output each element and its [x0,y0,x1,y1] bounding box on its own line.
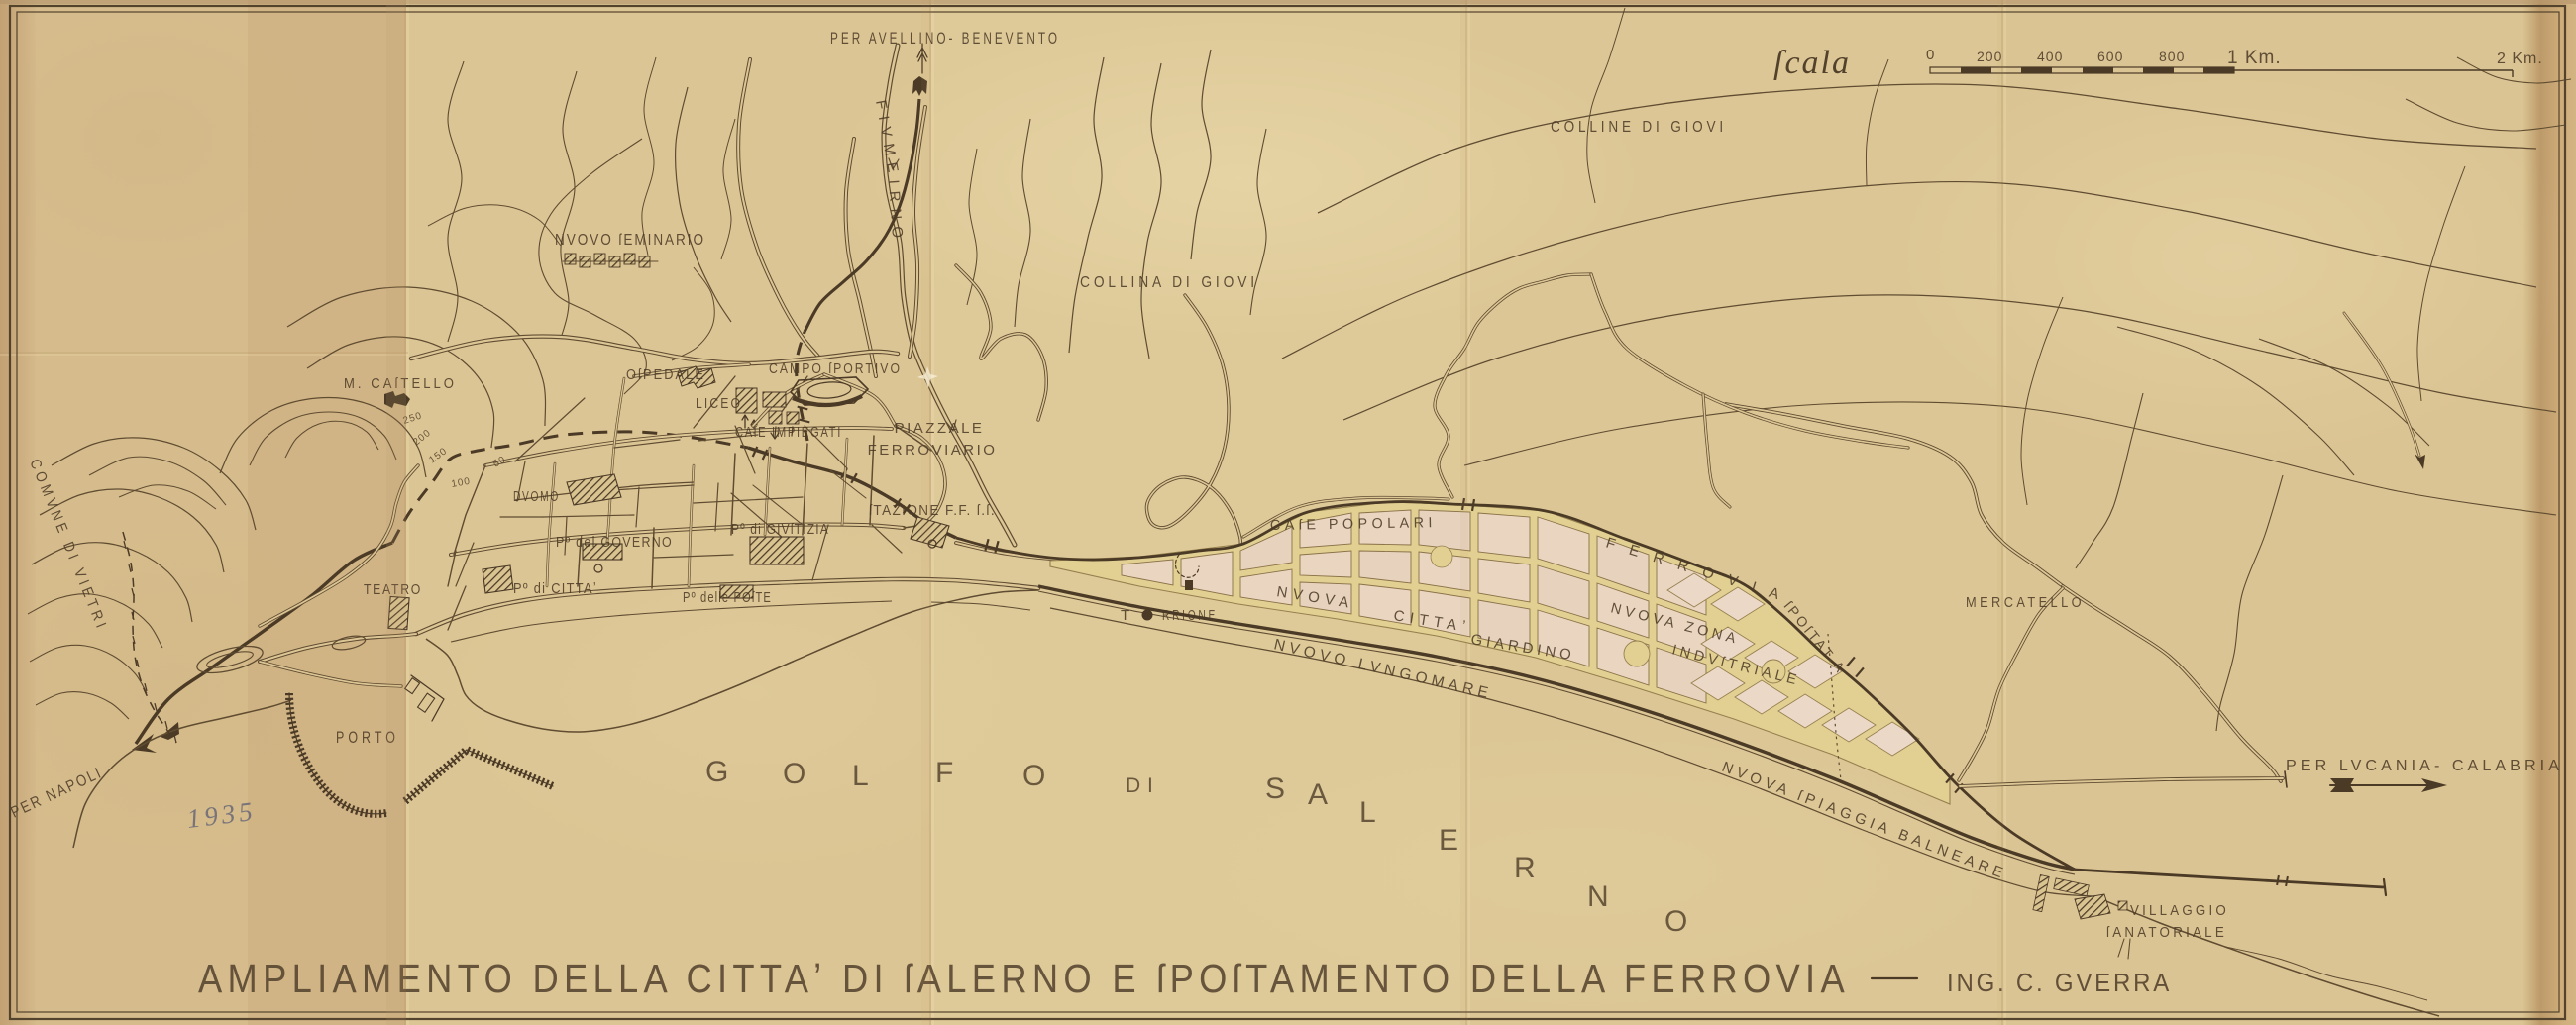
svg-text:CAMPO ſPORTIVO: CAMPO ſPORTIVO [769,360,902,377]
svg-text:D: D [1126,774,1140,797]
svg-text:CAſE POPOLARI: CAſE POPOLARI [1270,515,1437,534]
svg-text:I: I [1147,774,1153,797]
svg-text:O: O [783,758,805,790]
svg-text:PER AVELLINO- BENEVENTO: PER AVELLINO- BENEVENTO [830,30,1060,48]
svg-text:RRIONE: RRIONE [1162,607,1218,624]
svg-text:DVOMO: DVOMO [513,488,560,505]
svg-text:COLLINA DI GIOVI: COLLINA DI GIOVI [1080,274,1258,291]
svg-text:N: N [1587,880,1609,913]
svg-text:L: L [1359,796,1376,829]
svg-text:400: 400 [2037,49,2063,64]
svg-text:FERROVIARIO: FERROVIARIO [868,442,998,459]
svg-text:COLLINE DI GIOVI: COLLINE DI GIOVI [1551,119,1727,136]
svg-text:O: O [1664,905,1687,938]
svg-text:Pº di CITTAʼ: Pº di CITTAʼ [513,581,597,597]
svg-text:0: 0 [1926,47,1934,63]
svg-text:NVOVO ſEMINARIO: NVOVO ſEMINARIO [555,232,705,249]
svg-text:600: 600 [2097,49,2123,64]
svg-text:OſPEDALE: OſPEDALE [626,366,705,383]
svg-text:PIAZZALE: PIAZZALE [895,420,985,437]
svg-text:T: T [1121,607,1129,624]
svg-text:Pº di GIVſTIZIA: Pº di GIVſTIZIA [731,521,829,538]
svg-text:ING. C. GVERRA: ING. C. GVERRA [1947,968,2172,997]
svg-text:CAſE IMPIEGATI: CAſE IMPIEGATI [735,425,842,441]
svg-text:MERCATELLO: MERCATELLO [1966,594,2085,611]
svg-text:1 Km.: 1 Km. [2227,48,2282,68]
svg-text:G: G [705,756,728,788]
svg-text:Pº delle POſTE: Pº delle POſTE [683,590,772,606]
svg-text:L: L [852,760,869,792]
svg-text:Pº del GOVERNO: Pº del GOVERNO [556,535,673,551]
svg-text:ſTAZIONE F.F. ſ.ſ.: ſTAZIONE F.F. ſ.ſ. [869,503,996,519]
svg-text:2 Km.: 2 Km. [2497,51,2543,67]
svg-text:F: F [935,757,953,789]
svg-text:ſcala: ſcala [1773,45,1851,81]
svg-text:R: R [1514,852,1536,884]
svg-text:ſANATORIALE: ſANATORIALE [2106,925,2227,941]
svg-text:VILLAGGIO: VILLAGGIO [2130,903,2229,919]
svg-text:A: A [1308,778,1328,811]
svg-text:LICEO: LICEO [696,396,742,412]
svg-text:PER LVCANIA- CALABRIA: PER LVCANIA- CALABRIA [2286,758,2563,774]
svg-text:E: E [1439,824,1458,857]
svg-text:800: 800 [2159,49,2185,64]
svg-text:AMPLIAMENTO DELLA CITTAʼ DI: AMPLIAMENTO DELLA CITTAʼ DI ſALERNO E ſP… [198,956,1850,1001]
svg-text:O: O [1022,760,1045,792]
svg-text:S: S [1265,772,1285,805]
